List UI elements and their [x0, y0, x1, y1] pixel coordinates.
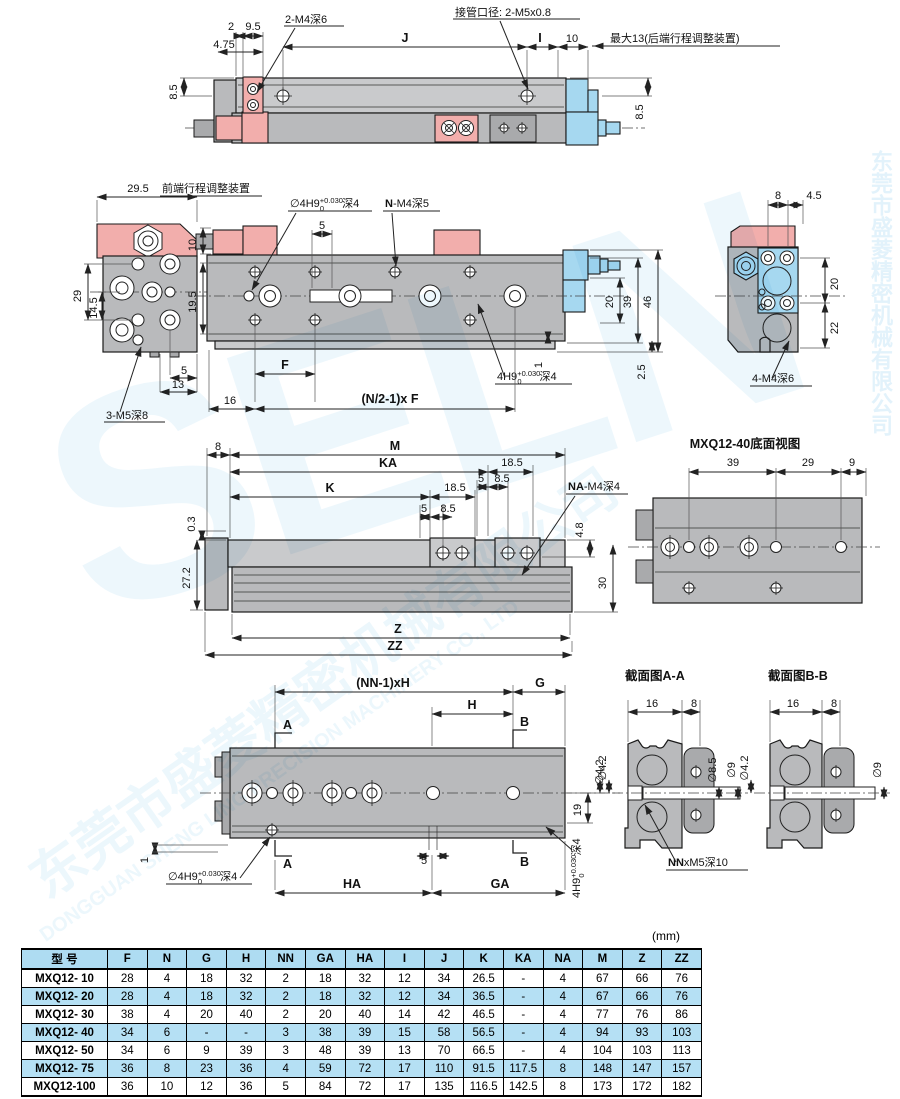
- value-cell: 34: [424, 988, 464, 1006]
- front-view-row: 29.5 前端行程调整装置 29 14.5 5 13 3-M5深8: [72, 181, 845, 422]
- value-cell: 76: [662, 969, 702, 988]
- value-cell: 56.5: [464, 1024, 504, 1042]
- col-header-11: KA: [503, 949, 543, 969]
- table-row: MXQ12- 5034693934839137066.5-4104103113: [22, 1042, 702, 1060]
- value-cell: 36: [108, 1078, 148, 1097]
- value-cell: 13: [385, 1042, 425, 1060]
- dim-Z: Z: [394, 622, 402, 636]
- plug-pink-2: [243, 226, 277, 257]
- value-cell: 9: [187, 1042, 227, 1060]
- value-cell: 36: [226, 1060, 266, 1078]
- col-header-14: Z: [622, 949, 662, 969]
- dowel-hole-label: ∅4H9+0.0300深4: [290, 196, 359, 213]
- value-cell: 17: [385, 1060, 425, 1078]
- value-cell: 116.5: [464, 1078, 504, 1097]
- dim-16-a: 16: [646, 698, 658, 710]
- dim-nn-formula: (NN-1)xH: [356, 676, 409, 690]
- model-cell: MXQ12-100: [22, 1078, 108, 1097]
- section-a-title: 截面图A-A: [625, 668, 685, 683]
- dim-dia8-5: ∅8.5: [707, 758, 719, 783]
- col-header-15: ZZ: [662, 949, 702, 969]
- dim-18-5-b: 18.5: [444, 482, 465, 494]
- dim-39-b: 39: [727, 457, 739, 469]
- model-cell: MXQ12- 50: [22, 1042, 108, 1060]
- col-header-2: N: [147, 949, 187, 969]
- col-header-4: H: [226, 949, 266, 969]
- value-cell: -: [503, 969, 543, 988]
- value-cell: 93: [622, 1024, 662, 1042]
- value-cell: 110: [424, 1060, 464, 1078]
- dim-J: J: [402, 31, 409, 45]
- value-cell: 48: [305, 1042, 345, 1060]
- value-cell: 6: [147, 1024, 187, 1042]
- value-cell: 14: [385, 1006, 425, 1024]
- dim-dia4-2-b: ∅4.2: [739, 756, 751, 781]
- value-cell: 182: [662, 1078, 702, 1097]
- value-cell: 2: [266, 969, 306, 988]
- dim-5-b: 5: [421, 503, 427, 515]
- dim-9-b: 9: [849, 457, 855, 469]
- value-cell: 34: [108, 1042, 148, 1060]
- sensor-block: [490, 115, 536, 142]
- value-cell: 36: [108, 1060, 148, 1078]
- value-cell: 84: [305, 1078, 345, 1097]
- unit-note: (mm): [652, 929, 680, 943]
- left-nub: [194, 120, 216, 137]
- thread-4m4-label: 4-M4深6: [752, 372, 794, 385]
- value-cell: 4: [147, 969, 187, 988]
- value-cell: 40: [226, 1006, 266, 1024]
- model-cell: MXQ12- 20: [22, 988, 108, 1006]
- section-a-a: 截面图A-A 16 8 ∅4.2 ∅8.5 ∅9 N: [597, 668, 748, 870]
- value-cell: 36.5: [464, 988, 504, 1006]
- value-cell: 8: [543, 1060, 583, 1078]
- value-cell: 20: [187, 1006, 227, 1024]
- dowel-hole2-label: 4H9+0.0300深4: [497, 369, 557, 386]
- dim-2: 2: [228, 21, 234, 33]
- col-header-12: NA: [543, 949, 583, 969]
- value-cell: 10: [147, 1078, 187, 1097]
- bottom-lip: [215, 341, 555, 349]
- value-cell: 6: [147, 1042, 187, 1060]
- value-cell: 104: [583, 1042, 623, 1060]
- value-cell: 32: [345, 988, 385, 1006]
- value-cell: 103: [622, 1042, 662, 1060]
- value-cell: 4: [266, 1060, 306, 1078]
- dim-19-5: 19.5: [187, 291, 199, 312]
- dim-8-5-a: 8.5: [494, 473, 509, 485]
- table-row: MXQ12-100361012365847217135116.5142.5817…: [22, 1078, 702, 1097]
- value-cell: 26.5: [464, 969, 504, 988]
- dim-K: K: [325, 481, 334, 495]
- value-cell: 32: [345, 969, 385, 988]
- technical-drawing-page: SELN 东莞市盛菱精密机械有限公司 DONGGUAN SHENG LING P…: [0, 0, 900, 1099]
- value-cell: 135: [424, 1078, 464, 1097]
- value-cell: 66: [622, 969, 662, 988]
- dim-1-mount: 1: [139, 857, 151, 863]
- dim-8-side: 8: [775, 190, 781, 202]
- dim-39: 39: [622, 296, 634, 308]
- model-cell: MXQ12- 40: [22, 1024, 108, 1042]
- max13-label: 最大13(后端行程调整装置): [610, 31, 740, 45]
- value-cell: 91.5: [464, 1060, 504, 1078]
- dim-19: 19: [572, 804, 584, 816]
- mxq40-title: MXQ12-40底面视图: [690, 436, 800, 451]
- dim-5-mount: 5: [421, 855, 427, 867]
- value-cell: 28: [108, 988, 148, 1006]
- thread-2m4-label: 2-M4深6: [285, 13, 327, 26]
- dim-G: G: [535, 676, 545, 690]
- col-header-9: J: [424, 949, 464, 969]
- table-row: MXQ12- 30384204022040144246.5-4777686: [22, 1006, 702, 1024]
- dim-8-b2: 8: [831, 698, 837, 710]
- section-b-top: B: [520, 715, 529, 729]
- value-cell: 20: [305, 1006, 345, 1024]
- dim-H: H: [467, 698, 476, 712]
- dim-10-front: 10: [187, 239, 199, 251]
- dim-5-side: 5: [181, 365, 187, 377]
- value-cell: 3: [266, 1042, 306, 1060]
- col-header-8: I: [385, 949, 425, 969]
- port-size-label: 接管口径: 2-M5x0.8: [455, 5, 551, 19]
- value-cell: 113: [662, 1042, 702, 1060]
- section-a-top: A: [283, 718, 292, 732]
- dim-GA: GA: [491, 877, 510, 891]
- dim-29-b: 29: [802, 457, 814, 469]
- section-b-b: 截面图B-B 16 8 ∅4.2 ∅9: [739, 668, 890, 848]
- dim-5-slot: 5: [319, 220, 325, 232]
- value-cell: 67: [583, 969, 623, 988]
- value-cell: 3: [266, 1024, 306, 1042]
- value-cell: 36: [226, 1078, 266, 1097]
- dim-8-b: 8: [215, 441, 221, 453]
- model-cell: MXQ12- 30: [22, 1006, 108, 1024]
- value-cell: 15: [385, 1024, 425, 1042]
- dim-dia9-b: ∅9: [872, 762, 884, 778]
- value-cell: 66.5: [464, 1042, 504, 1060]
- left-cap-b: [205, 538, 228, 610]
- value-cell: 67: [583, 988, 623, 1006]
- rotated-tol-label: 4H9+0.0300深4: [569, 838, 586, 898]
- dim-16-b: 16: [787, 698, 799, 710]
- dim-27-2: 27.2: [181, 567, 193, 588]
- dim-29: 29: [72, 290, 84, 302]
- section-b-bottom: B: [520, 855, 529, 869]
- table-row: MXQ12- 753682336459721711091.5117.581481…: [22, 1060, 702, 1078]
- dim-29-5: 29.5: [127, 183, 148, 195]
- front-adjuster-plug: [216, 116, 242, 140]
- dim-8-a: 8: [691, 698, 697, 710]
- value-cell: 86: [662, 1006, 702, 1024]
- mount-view-row: (NN-1)xH G H A B A B ∅4.2 19 1 ∅4H9+0.03…: [139, 668, 890, 898]
- pitch-formula: (N/2-1)x F: [362, 392, 419, 406]
- value-cell: 72: [345, 1078, 385, 1097]
- value-cell: 4: [543, 1006, 583, 1024]
- value-cell: -: [226, 1024, 266, 1042]
- col-header-7: HA: [345, 949, 385, 969]
- value-cell: 76: [622, 1006, 662, 1024]
- value-cell: 172: [622, 1078, 662, 1097]
- dim-14-5: 14.5: [88, 297, 100, 318]
- table-row: MXQ12- 40346--33839155856.5-49493103: [22, 1024, 702, 1042]
- value-cell: 12: [187, 1078, 227, 1097]
- value-cell: -: [503, 1024, 543, 1042]
- mxq40-bottom-view: MXQ12-40底面视图 39: [628, 436, 880, 603]
- value-cell: 58: [424, 1024, 464, 1042]
- value-cell: -: [187, 1024, 227, 1042]
- value-cell: 103: [662, 1024, 702, 1042]
- col-header-6: GA: [305, 949, 345, 969]
- front-adjuster-hex: [242, 112, 268, 143]
- value-cell: 18: [187, 988, 227, 1006]
- value-cell: 4: [543, 988, 583, 1006]
- value-cell: 46.5: [464, 1006, 504, 1024]
- col-header-0: 型 号: [22, 949, 108, 969]
- dim-9-5: 9.5: [245, 21, 260, 33]
- dim-4-8: 4.8: [574, 522, 586, 537]
- value-cell: 147: [622, 1060, 662, 1078]
- section-b-title: 截面图B-B: [768, 668, 828, 683]
- dim-F: F: [281, 358, 289, 372]
- value-cell: 39: [345, 1024, 385, 1042]
- dim-20-right: 20: [604, 296, 616, 308]
- col-header-10: K: [464, 949, 504, 969]
- dim-46: 46: [642, 296, 654, 308]
- dim-I: I: [538, 31, 541, 45]
- value-cell: 4: [147, 1006, 187, 1024]
- value-cell: 142.5: [503, 1078, 543, 1097]
- value-cell: -: [503, 1006, 543, 1024]
- plug-pink-1: [213, 230, 243, 254]
- mount-dowel-label: ∅4H9+0.0300深4: [168, 869, 237, 886]
- dim-dia4-2-a: ∅4.2: [597, 756, 609, 781]
- value-cell: 17: [385, 1078, 425, 1097]
- value-cell: 4: [543, 1024, 583, 1042]
- value-cell: 18: [305, 988, 345, 1006]
- value-cell: 94: [583, 1024, 623, 1042]
- value-cell: 42: [424, 1006, 464, 1024]
- na-m4-label: NA-M4深4: [568, 480, 620, 493]
- model-cell: MXQ12- 10: [22, 969, 108, 988]
- top-view: 2 9.5 4.75 2-M4深6 J 接管口径: 2-M5x0.8 I 10 …: [168, 5, 780, 145]
- value-cell: 157: [662, 1060, 702, 1078]
- dim-8-5-right: 8.5: [634, 104, 646, 119]
- table-row: MXQ12- 20284183221832123436.5-4676676: [22, 988, 702, 1006]
- value-cell: 2: [266, 988, 306, 1006]
- model-cell: MXQ12- 75: [22, 1060, 108, 1078]
- dim-ZZ: ZZ: [387, 639, 403, 653]
- value-cell: 38: [305, 1024, 345, 1042]
- value-cell: 72: [345, 1060, 385, 1078]
- value-cell: 148: [583, 1060, 623, 1078]
- bottom-view-row: 8 M KA 18.5 5 8.5 K 18.5 5 8.5 NA-M4深4: [181, 436, 880, 655]
- dim-0-3: 0.3: [186, 516, 198, 531]
- dim-4-75: 4.75: [213, 39, 234, 51]
- section-a-bottom: A: [283, 857, 292, 871]
- nn-m5-label: NNxM5深10: [668, 856, 728, 869]
- value-cell: 28: [108, 969, 148, 988]
- dim-dia9-a: ∅9: [726, 762, 738, 778]
- value-cell: 2: [266, 1006, 306, 1024]
- stopper-top: [434, 230, 480, 256]
- value-cell: 32: [226, 969, 266, 988]
- value-cell: 39: [226, 1042, 266, 1060]
- value-cell: 12: [385, 988, 425, 1006]
- dim-KA: KA: [379, 456, 397, 470]
- main-front-view: 10 19.5 ∅4H9+0.0300深4 5 N-M4深5 20 39: [187, 196, 663, 412]
- value-cell: 18: [187, 969, 227, 988]
- value-cell: 4: [147, 988, 187, 1006]
- dim-8-5-b: 8.5: [440, 503, 455, 515]
- value-cell: 34: [108, 1024, 148, 1042]
- dim-13: 13: [172, 379, 184, 391]
- dim-HA: HA: [343, 877, 361, 891]
- value-cell: 77: [583, 1006, 623, 1024]
- dimension-table: 型 号FNGHNNGAHAIJKKANAMZZZ MXQ12- 10284183…: [21, 948, 702, 1097]
- dim-2-5: 2.5: [636, 364, 648, 379]
- col-header-5: NN: [266, 949, 306, 969]
- dim-5-a: 5: [478, 473, 484, 485]
- rear-adjuster-blue: [566, 79, 620, 145]
- dim-18-5-a: 18.5: [501, 457, 522, 469]
- dim-8-5-left: 8.5: [168, 84, 180, 99]
- table-row: MXQ12- 10284183221832123426.5-4676676: [22, 969, 702, 988]
- thread-3m5-label: 3-M5深8: [106, 409, 148, 422]
- value-cell: 66: [622, 988, 662, 1006]
- rail-b: [232, 567, 572, 612]
- col-header-13: M: [583, 949, 623, 969]
- value-cell: 32: [226, 988, 266, 1006]
- dim-16: 16: [224, 395, 236, 407]
- dim-M: M: [390, 439, 400, 453]
- dim-1: 1: [533, 362, 545, 368]
- svg-text:4H9+0.0300深4: 4H9+0.0300深4: [569, 838, 586, 898]
- right-side-view: 8 4.5 20 22 4-M4深6: [715, 190, 845, 386]
- dim-30: 30: [597, 577, 609, 589]
- value-cell: 38: [108, 1006, 148, 1024]
- value-cell: 18: [305, 969, 345, 988]
- value-cell: 173: [583, 1078, 623, 1097]
- dim-4-5: 4.5: [806, 190, 821, 202]
- n-m4-label: N-M4深5: [385, 197, 429, 210]
- front-adjuster-label: 前端行程调整装置: [162, 181, 250, 195]
- value-cell: 8: [147, 1060, 187, 1078]
- value-cell: 39: [345, 1042, 385, 1060]
- value-cell: 70: [424, 1042, 464, 1060]
- value-cell: 59: [305, 1060, 345, 1078]
- dim-10: 10: [566, 33, 578, 45]
- value-cell: 23: [187, 1060, 227, 1078]
- col-header-1: F: [108, 949, 148, 969]
- col-header-3: G: [187, 949, 227, 969]
- value-cell: 5: [266, 1078, 306, 1097]
- dim-20-side: 20: [829, 278, 841, 290]
- value-cell: -: [503, 1042, 543, 1060]
- value-cell: 117.5: [503, 1060, 543, 1078]
- value-cell: 4: [543, 969, 583, 988]
- value-cell: -: [503, 988, 543, 1006]
- value-cell: 40: [345, 1006, 385, 1024]
- dim-22-side: 22: [829, 322, 841, 334]
- value-cell: 4: [543, 1042, 583, 1060]
- drawing-svg: 2 9.5 4.75 2-M4深6 J 接管口径: 2-M5x0.8 I 10 …: [0, 0, 900, 940]
- value-cell: 8: [543, 1078, 583, 1097]
- value-cell: 34: [424, 969, 464, 988]
- value-cell: 76: [662, 988, 702, 1006]
- value-cell: 12: [385, 969, 425, 988]
- table-header-row: 型 号FNGHNNGAHAIJKKANAMZZZ: [22, 949, 702, 969]
